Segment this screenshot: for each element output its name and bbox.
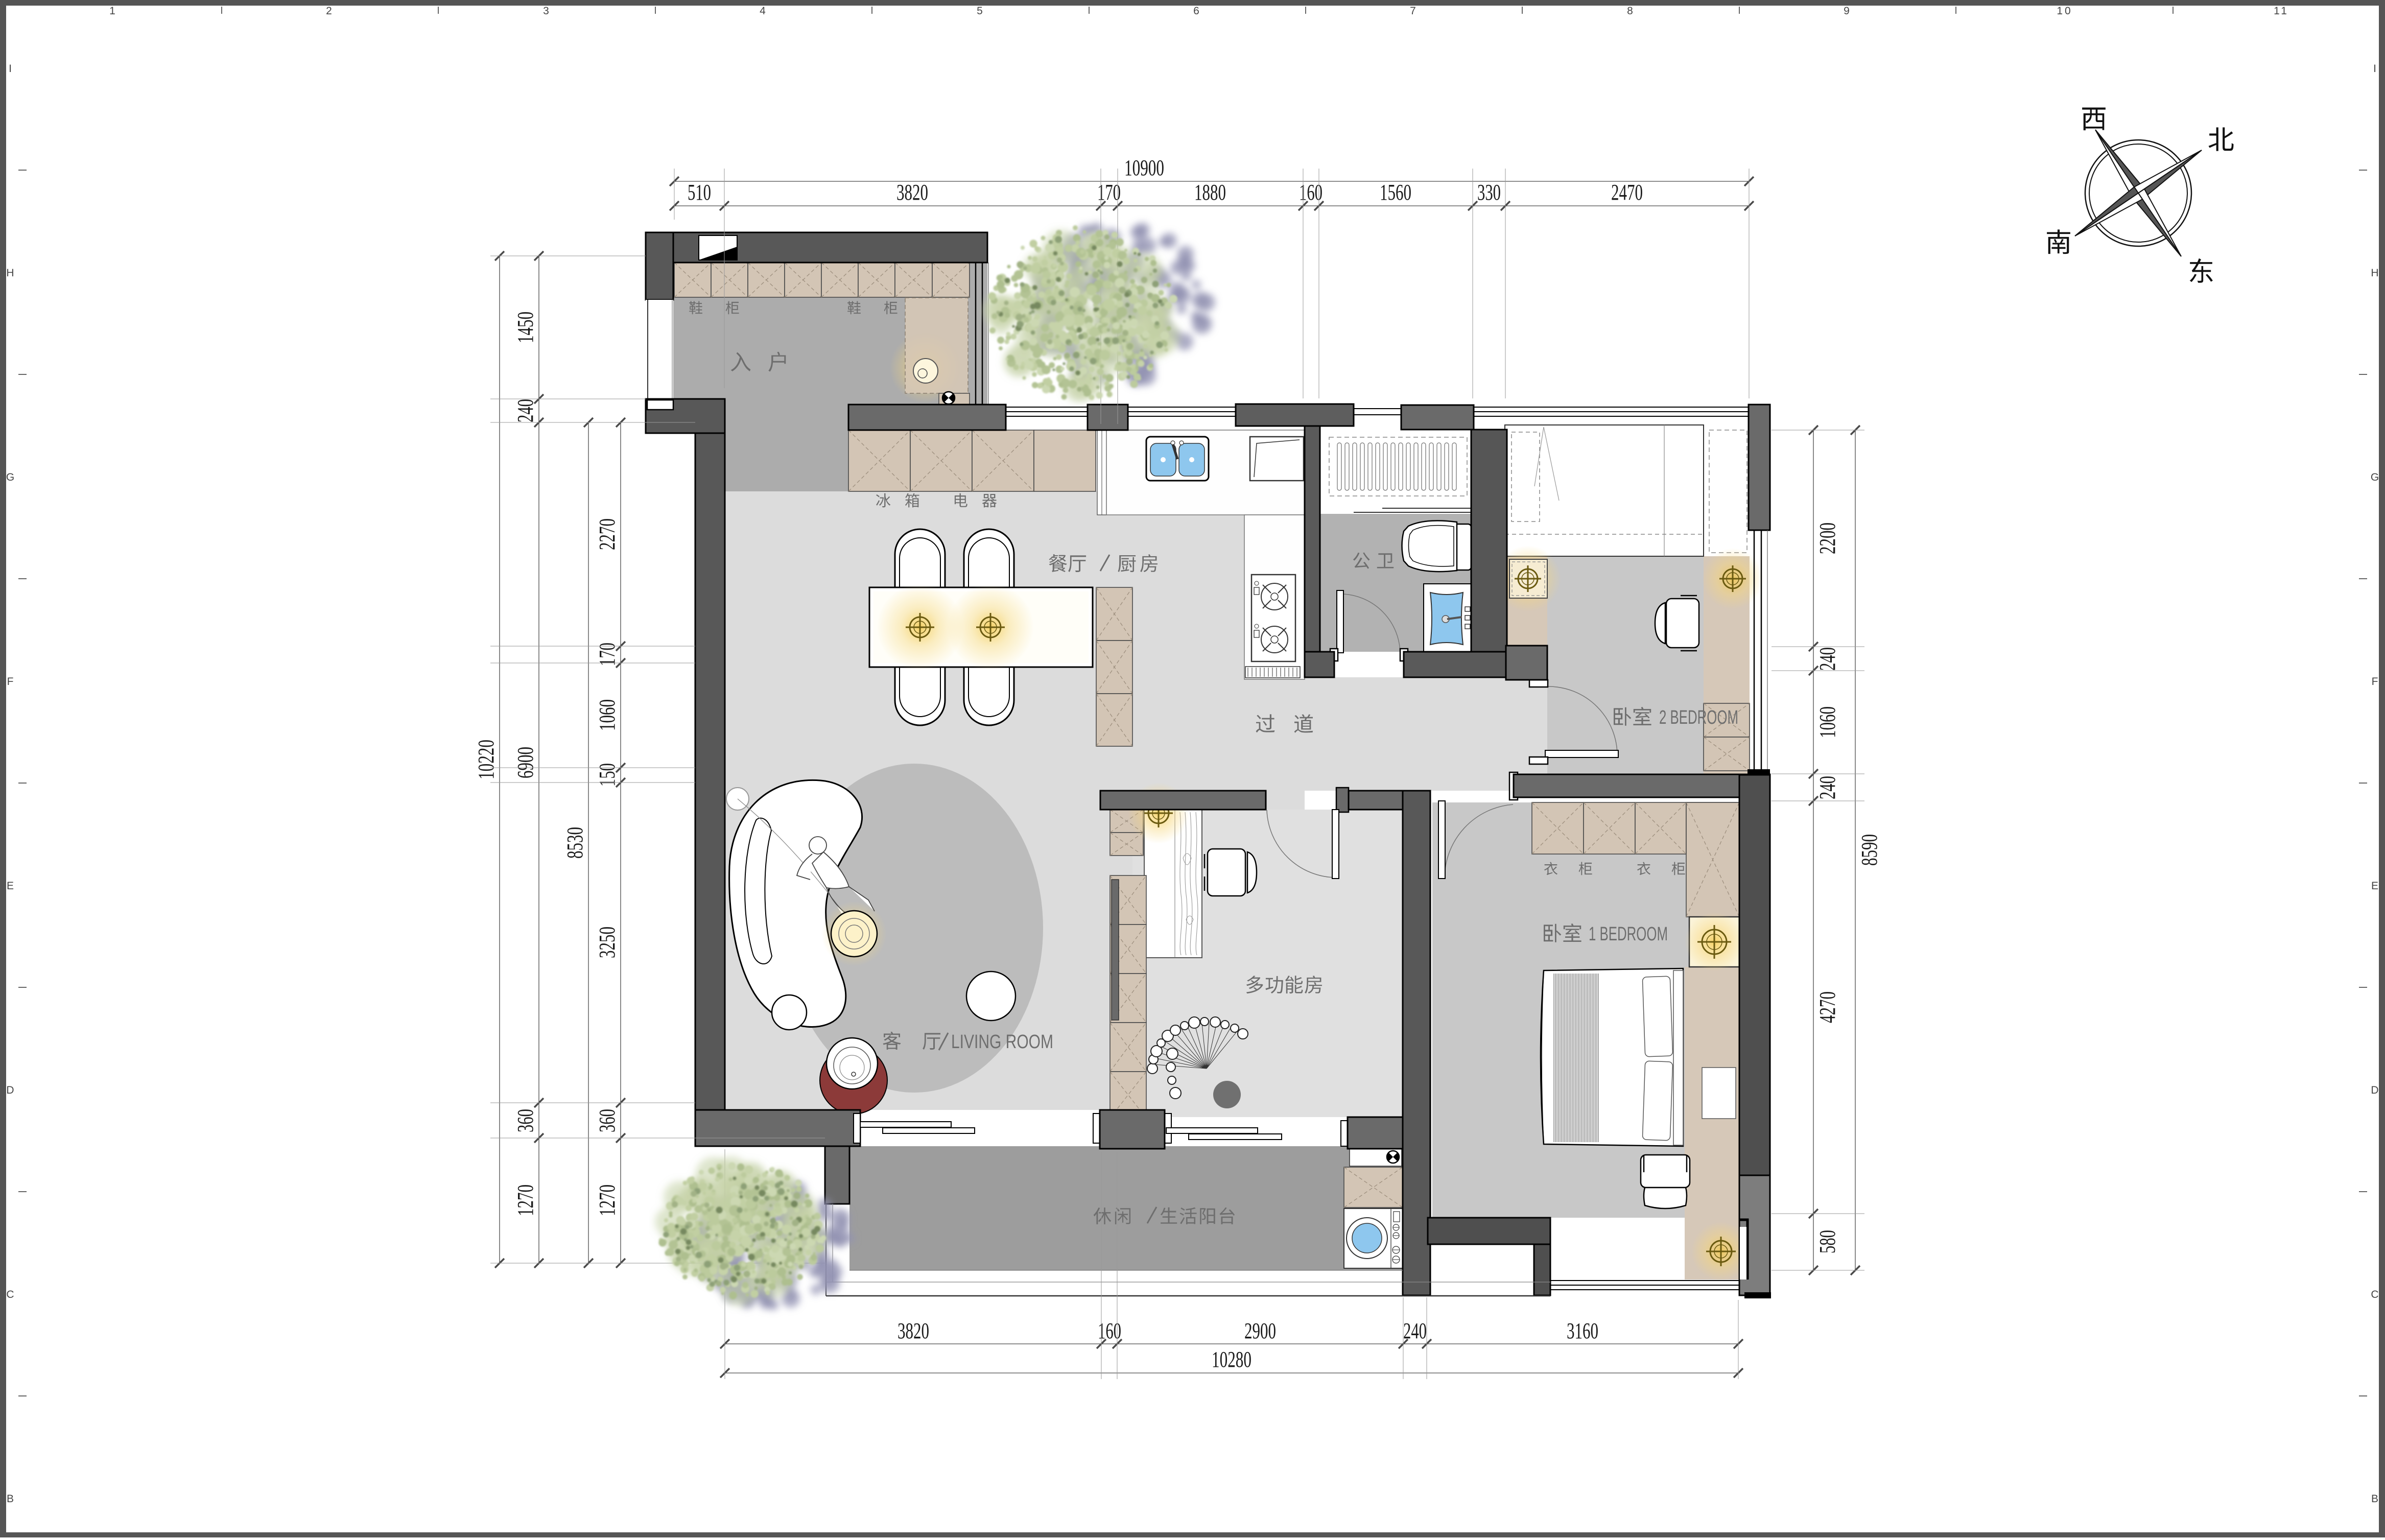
svg-text:240: 240 — [1403, 1318, 1427, 1343]
svg-text:3820: 3820 — [896, 180, 928, 205]
svg-text:E: E — [2371, 880, 2378, 892]
svg-text:3820: 3820 — [898, 1318, 929, 1343]
svg-text:240: 240 — [1815, 776, 1840, 799]
svg-text:6900: 6900 — [513, 747, 538, 778]
svg-text:1: 1 — [109, 5, 117, 17]
svg-text:I: I — [9, 63, 12, 75]
svg-text:360: 360 — [595, 1109, 620, 1132]
svg-text:H: H — [2371, 267, 2378, 279]
svg-text:8590: 8590 — [1857, 834, 1882, 866]
svg-text:10220: 10220 — [474, 740, 499, 779]
svg-text:240: 240 — [1815, 647, 1840, 671]
svg-text:B: B — [7, 1493, 14, 1505]
svg-text:1270: 1270 — [513, 1184, 538, 1216]
svg-text:G: G — [2371, 471, 2379, 483]
svg-text:10900: 10900 — [1124, 155, 1164, 180]
svg-text:4: 4 — [760, 5, 768, 17]
svg-text:1450: 1450 — [513, 312, 538, 343]
svg-text:1270: 1270 — [595, 1184, 620, 1216]
svg-text:3: 3 — [543, 5, 551, 17]
svg-text:1060: 1060 — [1815, 706, 1840, 738]
svg-text:6: 6 — [1193, 5, 1201, 17]
svg-text:F: F — [7, 676, 14, 688]
svg-text:F: F — [2372, 676, 2378, 688]
svg-text:510: 510 — [688, 180, 711, 205]
svg-text:580: 580 — [1815, 1230, 1840, 1253]
svg-text:3160: 3160 — [1567, 1318, 1598, 1343]
svg-text:LIVING ROOM: LIVING ROOM — [951, 1031, 1053, 1053]
svg-text:1560: 1560 — [1380, 180, 1411, 205]
svg-text:5: 5 — [977, 5, 985, 17]
svg-text:H: H — [6, 267, 14, 279]
svg-text:C: C — [6, 1289, 14, 1300]
svg-text:1 BEDROOM: 1 BEDROOM — [1589, 923, 1668, 945]
svg-text:9: 9 — [1844, 5, 1852, 17]
svg-text:240: 240 — [513, 399, 538, 422]
svg-text:2 BEDROOM: 2 BEDROOM — [1659, 707, 1738, 728]
svg-text:330: 330 — [1477, 180, 1501, 205]
svg-text:B: B — [2371, 1493, 2378, 1505]
svg-text:E: E — [7, 880, 14, 892]
svg-text:D: D — [2371, 1084, 2378, 1096]
svg-text:10: 10 — [2057, 5, 2072, 17]
svg-text:G: G — [6, 471, 14, 483]
svg-text:2: 2 — [326, 5, 334, 17]
svg-text:150: 150 — [595, 763, 620, 787]
svg-text:11: 11 — [2274, 5, 2289, 17]
svg-text:8530: 8530 — [562, 827, 587, 859]
svg-text:2270: 2270 — [595, 518, 620, 550]
svg-text:3250: 3250 — [595, 927, 620, 958]
svg-text:360: 360 — [513, 1109, 538, 1132]
svg-text:8: 8 — [1627, 5, 1635, 17]
svg-text:2900: 2900 — [1244, 1318, 1276, 1343]
svg-text:D: D — [6, 1084, 14, 1096]
svg-text:7: 7 — [1410, 5, 1418, 17]
svg-text:10280: 10280 — [1212, 1347, 1251, 1372]
svg-text:4270: 4270 — [1815, 991, 1840, 1023]
svg-text:1880: 1880 — [1194, 180, 1226, 205]
svg-text:1060: 1060 — [595, 699, 620, 731]
svg-text:2200: 2200 — [1815, 523, 1840, 554]
svg-text:I: I — [2373, 63, 2376, 75]
svg-text:C: C — [2371, 1289, 2378, 1300]
svg-text:2470: 2470 — [1611, 180, 1643, 205]
